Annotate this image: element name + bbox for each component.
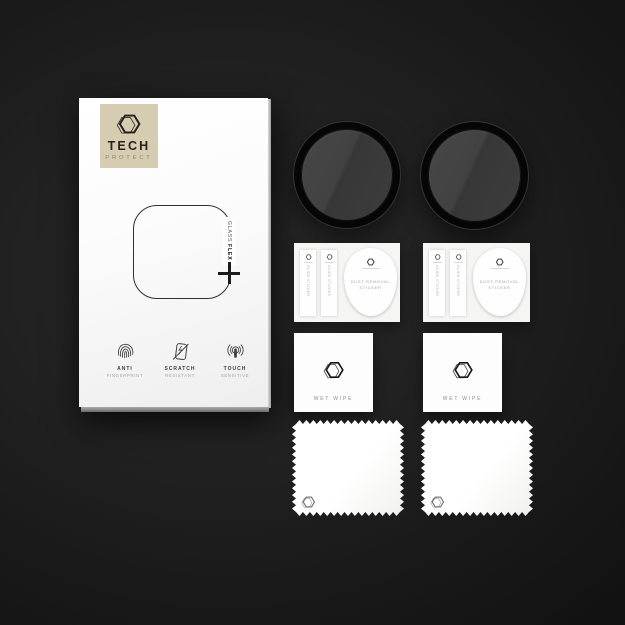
dust-sticker-label: DUST REMOVAL STICKER xyxy=(351,279,391,292)
wet-wipe-packet-1: WET WIPE xyxy=(294,333,373,412)
glass-protector-disc-2 xyxy=(421,122,528,229)
feature-title: ANTI xyxy=(117,366,133,372)
sachet-label: GUIDE STICKER xyxy=(306,265,310,296)
guide-sticker-sachet: GUIDE STICKER xyxy=(429,250,445,316)
feature-scratch-resistant: SCRATCH RESISTANT xyxy=(153,340,207,378)
divider xyxy=(304,262,313,263)
divider xyxy=(362,268,380,269)
dust-sticker-label: DUST REMOVAL STICKER xyxy=(480,279,520,292)
glass-protector-disc-1 xyxy=(294,122,400,228)
sachet-label: GUIDE STICKER xyxy=(435,265,439,296)
touch-icon xyxy=(224,340,247,363)
glass-surface xyxy=(428,129,521,222)
guide-sticker-sachet: GUIDE STICKER xyxy=(321,250,337,316)
wet-wipe-label: WET WIPE xyxy=(294,396,373,402)
hexagon-logo-icon xyxy=(301,495,316,509)
hexagon-logo-icon xyxy=(326,254,333,260)
hexagon-logo-icon xyxy=(434,254,441,260)
feature-title: SCRATCH xyxy=(164,366,195,372)
wet-wipe-packet-2: WET WIPE xyxy=(423,333,502,412)
sticker-kit-card-1: GUIDE STICKER GUIDE STICKER DUST REMOVAL… xyxy=(294,243,400,322)
feature-row: ANTI FINGERPRINT SCRATCH RESISTANT xyxy=(98,340,262,378)
fingerprint-icon xyxy=(114,340,137,363)
box-side-edge xyxy=(268,99,271,408)
guide-sticker-sachet: GUIDE STICKER xyxy=(450,250,466,316)
box-bottom-edge xyxy=(81,407,269,412)
sachet-label: GUIDE STICKER xyxy=(456,265,460,296)
watch-shape-outline xyxy=(133,205,231,299)
glass-surface xyxy=(301,129,393,221)
alignment-cross-icon xyxy=(218,262,240,284)
microfiber-cloth-2 xyxy=(421,420,533,516)
hexagon-logo-icon xyxy=(323,360,345,380)
divider xyxy=(325,262,334,263)
feature-touch-sensitive: TOUCH SENSITIVE xyxy=(208,340,262,378)
scratch-icon xyxy=(169,340,192,363)
feature-subtitle: FINGERPRINT xyxy=(107,373,143,378)
product-name-glass: GLASS xyxy=(226,221,232,242)
hexagon-logo-icon xyxy=(305,254,312,260)
product-name-vertical: GLASS FLEX xyxy=(222,217,236,265)
hexagon-logo-icon xyxy=(366,258,375,266)
dust-sticker-line1: DUST REMOVAL xyxy=(480,279,520,284)
guide-sticker-sachet: GUIDE STICKER xyxy=(300,250,316,316)
divider xyxy=(454,262,463,263)
dust-sticker-line1: DUST REMOVAL xyxy=(351,279,391,284)
hexagon-logo-icon xyxy=(455,254,462,260)
brand-badge: TECH PROTECT xyxy=(100,104,158,168)
dust-removal-sticker: DUST REMOVAL STICKER xyxy=(473,248,526,316)
divider xyxy=(433,262,442,263)
retail-box: TECH PROTECT GLASS FLEX ANTI FINGERPRINT xyxy=(79,98,268,407)
brand-subname: PROTECT xyxy=(105,155,152,161)
product-name-flex: FLEX xyxy=(226,244,232,260)
sticker-kit-card-2: GUIDE STICKER GUIDE STICKER DUST REMOVAL… xyxy=(423,243,530,322)
feature-title: TOUCH xyxy=(224,366,247,372)
dust-sticker-line2: STICKER xyxy=(359,285,381,290)
hexagon-logo-icon xyxy=(495,258,504,266)
dust-removal-sticker: DUST REMOVAL STICKER xyxy=(344,248,397,316)
microfiber-cloth-1 xyxy=(292,420,404,516)
feature-subtitle: RESISTANT xyxy=(165,373,195,378)
product-photo: TECH PROTECT GLASS FLEX ANTI FINGERPRINT xyxy=(0,0,625,625)
wet-wipe-label: WET WIPE xyxy=(423,396,502,402)
hexagon-logo-icon xyxy=(116,112,142,136)
brand-name: TECH xyxy=(108,139,151,153)
divider xyxy=(491,268,509,269)
feature-anti-fingerprint: ANTI FINGERPRINT xyxy=(98,340,152,378)
feature-subtitle: SENSITIVE xyxy=(221,373,249,378)
hexagon-logo-icon xyxy=(452,360,474,380)
dust-sticker-line2: STICKER xyxy=(488,285,510,290)
hexagon-logo-icon xyxy=(430,495,445,509)
sachet-label: GUIDE STICKER xyxy=(327,265,331,296)
